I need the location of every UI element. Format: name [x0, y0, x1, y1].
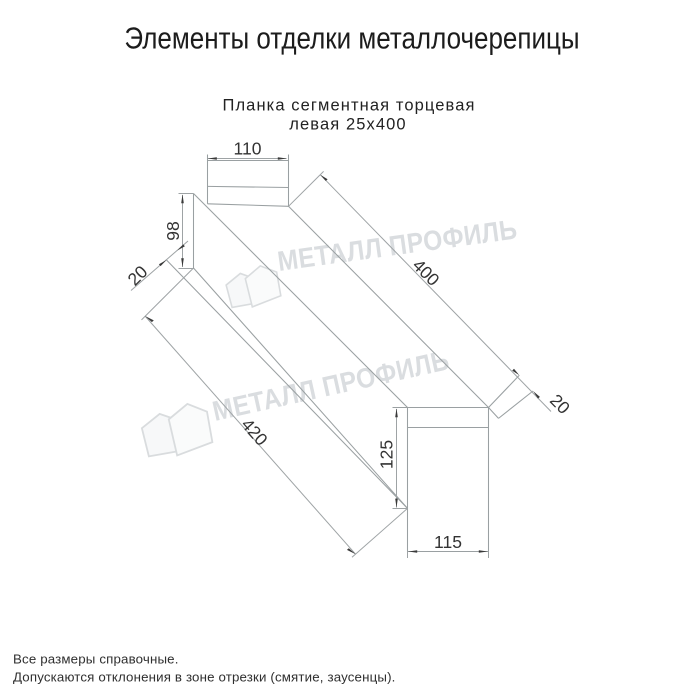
svg-text:левая 25х400: левая 25х400: [289, 116, 406, 134]
svg-text:98: 98: [163, 221, 183, 240]
svg-text:Планка сегментная торцевая: Планка сегментная торцевая: [222, 97, 475, 115]
svg-text:125: 125: [376, 440, 396, 469]
svg-text:Элементы отделки металлочерепи: Элементы отделки металлочерепицы: [124, 22, 579, 56]
svg-text:115: 115: [434, 532, 462, 552]
svg-text:Допускаются отклонения в зоне: Допускаются отклонения в зоне отрезки (с…: [13, 670, 396, 685]
svg-text:110: 110: [234, 139, 262, 159]
svg-text:Все размеры справочные.: Все размеры справочные.: [13, 652, 179, 667]
